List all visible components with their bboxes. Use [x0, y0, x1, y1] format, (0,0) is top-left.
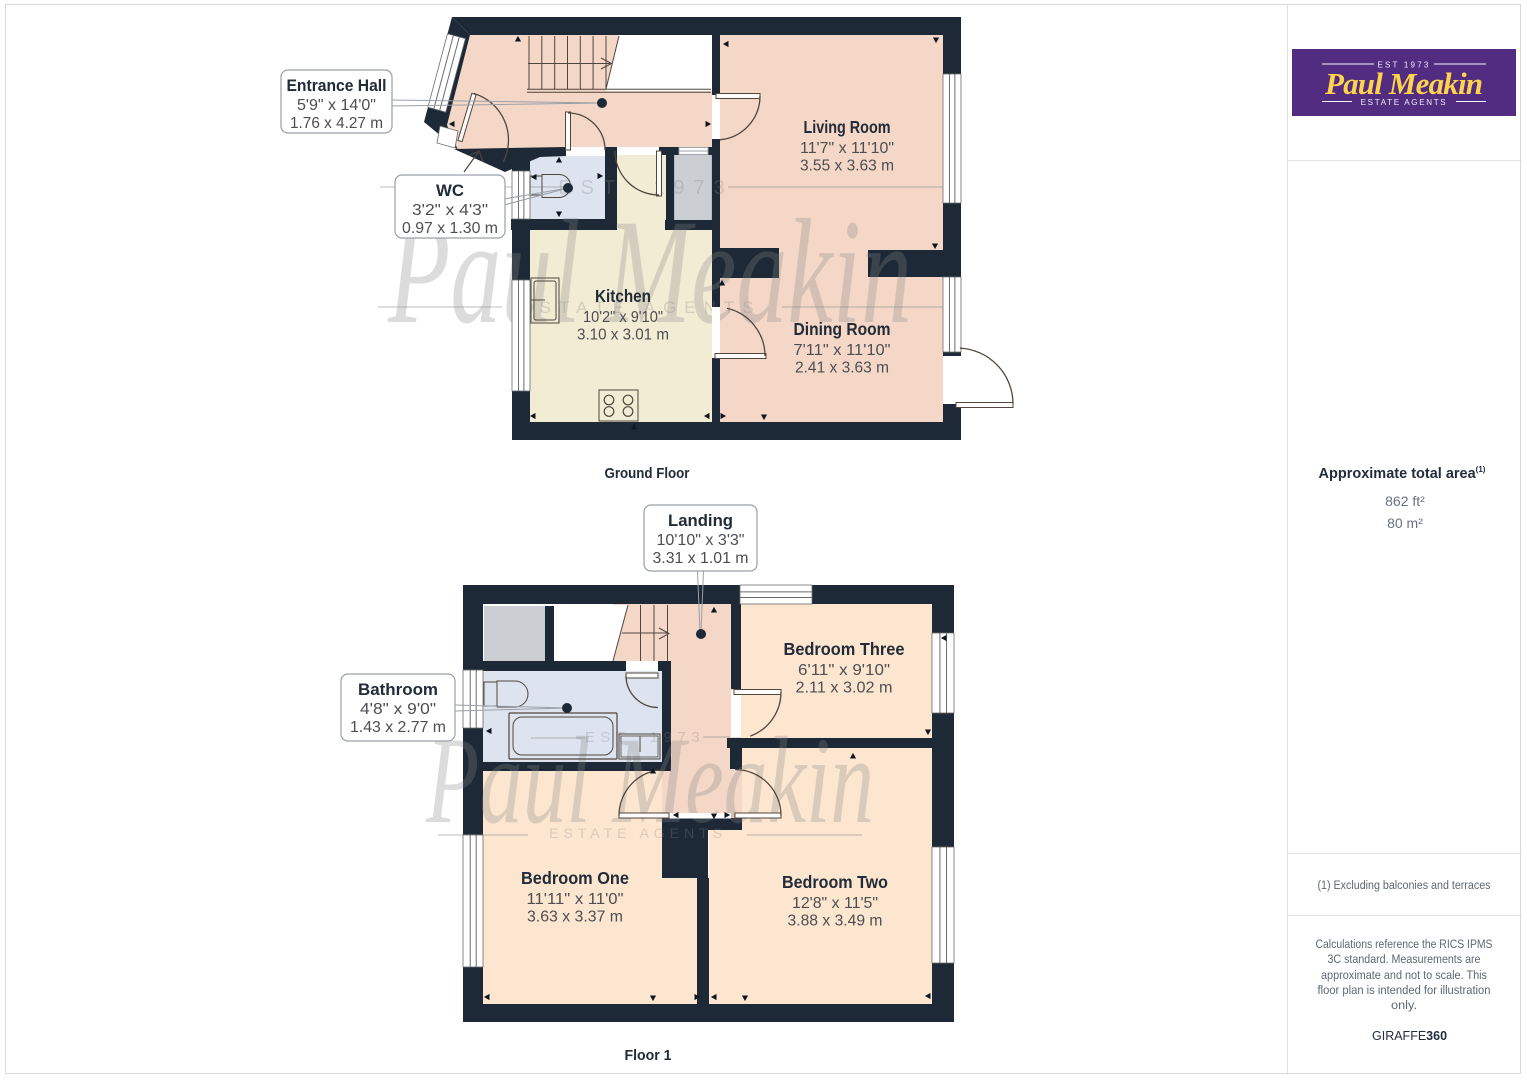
- svg-text:Approximate total area(1): Approximate total area(1): [1319, 465, 1486, 482]
- svg-text:Bedroom Two: Bedroom Two: [782, 872, 888, 892]
- svg-text:10'2" x 9'10": 10'2" x 9'10": [583, 309, 663, 326]
- svg-text:3.31 x 1.01 m: 3.31 x 1.01 m: [653, 550, 749, 567]
- svg-text:Bathroom: Bathroom: [358, 680, 438, 699]
- svg-text:Paul Meakin: Paul Meakin: [1324, 66, 1483, 101]
- svg-text:2.41 x 3.63 m: 2.41 x 3.63 m: [795, 360, 889, 377]
- svg-text:Landing: Landing: [668, 511, 733, 530]
- svg-text:Dining Room: Dining Room: [794, 319, 891, 339]
- svg-text:Ground Floor: Ground Floor: [605, 465, 690, 482]
- svg-text:floor plan is intended for ill: floor plan is intended for illustration: [1318, 983, 1491, 997]
- svg-text:WC: WC: [436, 181, 464, 200]
- svg-text:Calculations reference the RIC: Calculations reference the RICS IPMS: [1316, 937, 1493, 951]
- svg-text:ESTATE AGENTS: ESTATE AGENTS: [1361, 98, 1448, 107]
- svg-text:Bedroom One: Bedroom One: [521, 868, 629, 888]
- svg-text:GIRAFFE360: GIRAFFE360: [1372, 1029, 1447, 1043]
- svg-text:10'10" x 3'3": 10'10" x 3'3": [657, 532, 745, 549]
- svg-text:3.63 x 3.37 m: 3.63 x 3.37 m: [527, 909, 623, 926]
- svg-text:Living Room: Living Room: [804, 117, 891, 137]
- svg-text:Bedroom Three: Bedroom Three: [784, 639, 905, 659]
- svg-text:only.: only.: [1391, 998, 1417, 1012]
- svg-text:ESTATE AGENTS: ESTATE AGENTS: [549, 826, 727, 841]
- svg-text:11'7" x 11'10": 11'7" x 11'10": [800, 140, 894, 157]
- svg-text:12'8" x 11'5": 12'8" x 11'5": [792, 895, 878, 912]
- svg-text:1.43 x 2.77 m: 1.43 x 2.77 m: [350, 719, 446, 736]
- svg-text:3.10 x 3.01 m: 3.10 x 3.01 m: [577, 327, 669, 344]
- svg-text:11'11" x 11'0": 11'11" x 11'0": [527, 891, 624, 908]
- svg-text:3.88 x 3.49 m: 3.88 x 3.49 m: [788, 913, 883, 930]
- svg-text:approximate and not to scale.: approximate and not to scale. This: [1321, 968, 1487, 982]
- svg-text:3'2" x 4'3": 3'2" x 4'3": [412, 202, 488, 219]
- svg-text:4'8" x 9'0": 4'8" x 9'0": [360, 701, 436, 718]
- svg-text:3C standard. Measurements are: 3C standard. Measurements are: [1328, 952, 1481, 966]
- svg-text:Entrance Hall: Entrance Hall: [287, 76, 387, 95]
- svg-text:6'11" x 9'10": 6'11" x 9'10": [798, 662, 890, 679]
- svg-text:2.11 x 3.02 m: 2.11 x 3.02 m: [796, 680, 893, 697]
- svg-text:80 m²: 80 m²: [1387, 515, 1423, 531]
- svg-text:7'11" x 11'10": 7'11" x 11'10": [794, 342, 891, 359]
- svg-text:5'9" x 14'0": 5'9" x 14'0": [297, 97, 376, 114]
- svg-text:1.76 x 4.27 m: 1.76 x 4.27 m: [290, 115, 383, 132]
- svg-text:0.97 x 1.30 m: 0.97 x 1.30 m: [402, 220, 498, 237]
- svg-text:862 ft²: 862 ft²: [1385, 493, 1425, 509]
- svg-text:Kitchen: Kitchen: [595, 286, 651, 306]
- svg-text:Floor 1: Floor 1: [625, 1047, 672, 1064]
- svg-text:(1) Excluding balconies and te: (1) Excluding balconies and terraces: [1318, 878, 1491, 892]
- svg-text:3.55 x 3.63 m: 3.55 x 3.63 m: [800, 158, 894, 175]
